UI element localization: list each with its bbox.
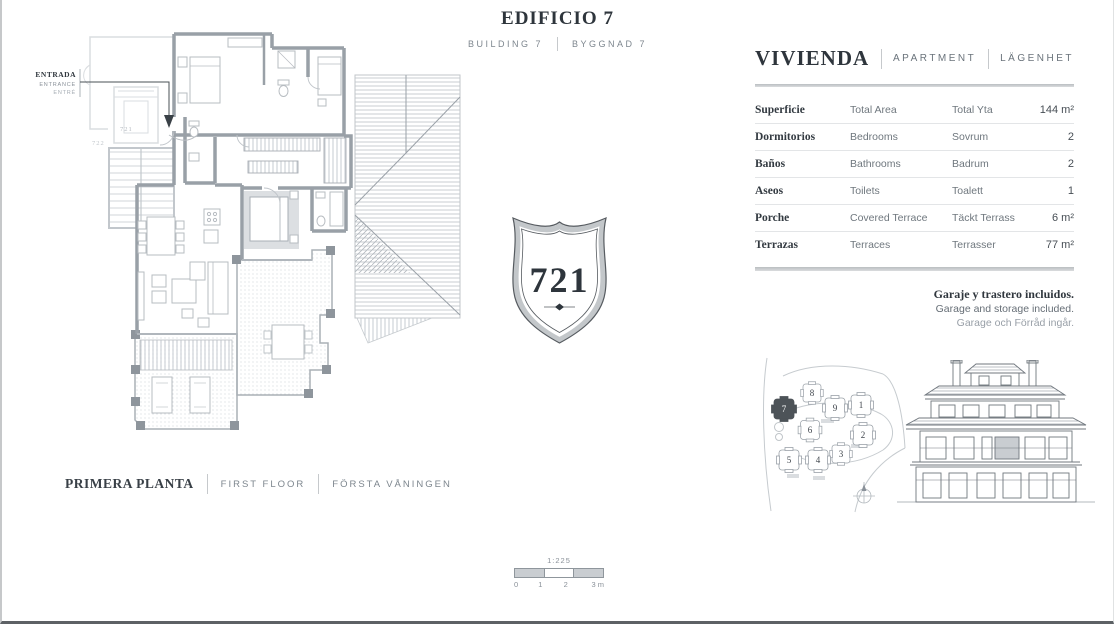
scale-bar: 1:225 0 1 2 3 m — [514, 556, 604, 589]
entrance-arrow-icon — [164, 115, 174, 128]
included-note-es: Garaje y trastero incluidos. — [755, 286, 1074, 302]
building-elevation — [895, 360, 1097, 512]
open-terrace — [232, 246, 335, 398]
svg-text:6: 6 — [808, 425, 813, 435]
svg-text:2: 2 — [861, 430, 866, 440]
included-note: Garaje y trastero incluidos. Garage and … — [755, 286, 1074, 331]
floor-label-sv: FÖRSTA VÅNINGEN — [332, 479, 452, 490]
table-row: Aseos Toilets Toalett 1 — [755, 178, 1074, 205]
entrance-label-es: ENTRADA — [35, 70, 76, 79]
badge-number: 721 — [530, 260, 590, 300]
svg-text:9: 9 — [833, 403, 838, 413]
entrance-label-sv: ENTRÉ — [53, 89, 76, 96]
svg-text:4: 4 — [816, 455, 821, 465]
divider — [557, 37, 558, 51]
table-row: Baños Bathrooms Badrum 2 — [755, 151, 1074, 178]
entrance-annotation: ENTRADA ENTRANCE ENTRÉ — [35, 69, 196, 140]
sun-lounger — [190, 377, 210, 413]
pergola — [140, 340, 232, 370]
svg-text:1: 1 — [859, 400, 864, 410]
master-bedroom-furniture — [244, 191, 299, 249]
included-note-en: Garage and storage included. — [755, 302, 1074, 316]
page-subtitle-sv: BYGGNAD 7 — [572, 39, 647, 49]
sun-lounger — [152, 377, 172, 413]
compass-icon — [853, 482, 875, 503]
table-row: Superficie Total Area Total Yta 144 m² — [755, 97, 1074, 124]
apartment-details-panel: VIVIENDA APARTMENT LÄGENHET Superficie T… — [755, 46, 1074, 331]
outdoor-table — [272, 325, 304, 359]
plan-adjacent-unit-number: 722 — [92, 140, 105, 147]
bedroom3-furniture — [318, 57, 341, 106]
table-bottom-rule — [755, 267, 1074, 271]
entrance-label-en: ENTRANCE — [39, 82, 76, 88]
floor-plan-drawing: ENTRADA ENTRANCE ENTRÉ 721 722 — [32, 25, 467, 475]
svg-text:5: 5 — [787, 455, 792, 465]
scale-bar-graphic — [514, 568, 604, 578]
unit-badge: 721 — [506, 216, 613, 351]
divider — [318, 474, 319, 494]
floor-label: PRIMERA PLANTA FIRST FLOOR FÖRSTA VÅNING… — [65, 474, 452, 494]
bathroom2-fixtures — [278, 51, 295, 97]
svg-text:8: 8 — [810, 388, 815, 398]
details-header-es: VIVIENDA — [755, 46, 869, 71]
living-room-furniture — [138, 262, 228, 327]
divider — [207, 474, 208, 494]
master-bath-fixtures — [316, 192, 343, 226]
wardrobes — [244, 138, 346, 183]
table-row: Porche Covered Terrace Täckt Terrass 6 m… — [755, 205, 1074, 232]
covered-porch — [131, 330, 239, 430]
header-rule — [755, 84, 1074, 87]
floor-label-en: FIRST FLOOR — [221, 479, 306, 490]
stairwell — [109, 148, 174, 228]
details-header-en: APARTMENT — [893, 53, 976, 64]
scale-tick: 3 m — [582, 580, 604, 589]
site-plan: 1 2 3 4 5 6 7 8 9 — [757, 356, 907, 518]
site-building-7-number: 7 — [782, 404, 787, 414]
sofa — [208, 262, 228, 314]
table-row: Dormitorios Bedrooms Sovrum 2 — [755, 124, 1074, 151]
scale-tick: 1 — [531, 580, 549, 589]
site-buildings — [777, 382, 876, 473]
details-header-sv: LÄGENHET — [1000, 53, 1074, 64]
bedroom2-furniture — [178, 38, 262, 103]
table-row: Terrazas Terraces Terrasser 77 m² — [755, 232, 1074, 259]
page-subtitle-en: BUILDING 7 — [468, 39, 543, 49]
dining-table — [147, 217, 175, 255]
brochure-page: EDIFICIO 7 BUILDING 7 BYGGNAD 7 — [0, 0, 1114, 624]
plan-unit-number: 721 — [120, 126, 133, 133]
roof-hatch — [355, 75, 460, 343]
site-roads — [764, 358, 905, 512]
included-note-sv: Garage och Förråd ingår. — [755, 316, 1074, 330]
wc-fixtures — [189, 121, 199, 161]
scale-tick: 0 — [514, 580, 524, 589]
details-table: Superficie Total Area Total Yta 144 m² D… — [755, 97, 1074, 258]
scale-ratio: 1:225 — [514, 556, 604, 565]
site-trees — [775, 423, 784, 441]
svg-text:3: 3 — [839, 449, 844, 459]
floor-label-es: PRIMERA PLANTA — [65, 476, 194, 492]
badge-ornament — [544, 304, 575, 311]
scale-tick: 2 — [557, 580, 575, 589]
details-header: VIVIENDA APARTMENT LÄGENHET — [755, 46, 1074, 71]
